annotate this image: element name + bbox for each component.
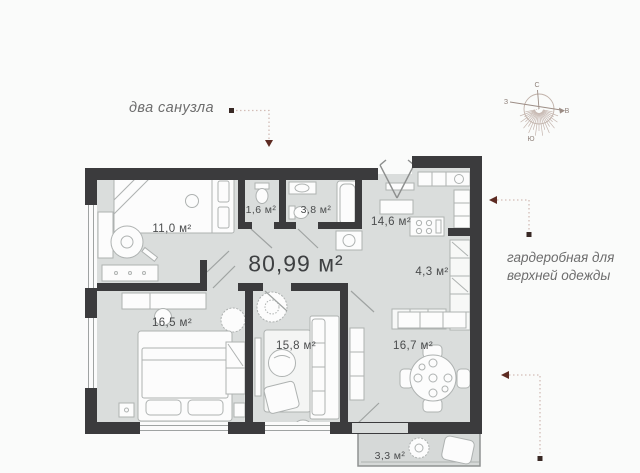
leader-bottom-right [501, 371, 543, 461]
sink-vanity [289, 182, 316, 194]
room-area-living: 16,7 м² [393, 340, 433, 352]
compass-west-label: З [504, 99, 508, 106]
total-area-label: 80,99 м² [248, 251, 343, 278]
desk [98, 212, 113, 258]
leader-wardrobe [489, 196, 532, 237]
leader-two-bathrooms [229, 108, 273, 147]
sideboard [398, 312, 466, 328]
window-bottom-2 [265, 422, 330, 434]
bed-double [138, 331, 232, 421]
room-area-balcony: 3,3 м² [375, 450, 406, 462]
room-area-wardrobe: 4,3 м² [415, 266, 448, 278]
compass-east-label: В [565, 108, 570, 115]
room-area-wc-small: 1,6 м² [246, 204, 277, 216]
entry-shelf [380, 200, 413, 214]
floorplan-drawing: С З В Ю [0, 0, 640, 473]
stove [410, 217, 444, 236]
sun-rays-icon [520, 110, 558, 136]
cabinet [350, 328, 364, 400]
plant [221, 308, 245, 332]
desk-2 [122, 293, 206, 309]
window-bedroom2 [85, 318, 97, 388]
balcony-door-gap [352, 423, 408, 433]
wardrobe-cabinet [226, 342, 245, 394]
bathtub [337, 181, 358, 228]
washing-machine [336, 231, 362, 250]
compass-sun-diagram: С З В Ю [504, 82, 570, 143]
pouf [186, 195, 199, 208]
room-area-bedroom-2: 16,5 м² [152, 317, 192, 329]
room-area-bathroom: 3,8 м² [301, 204, 332, 216]
toilet-small-wc [255, 183, 269, 204]
tv-console [255, 338, 261, 396]
room-area-room-3: 15,8 м² [276, 340, 316, 352]
compass-north-label: С [534, 82, 539, 89]
window-bedroom1 [85, 205, 97, 288]
compass-south-label: Ю [527, 136, 534, 143]
annotation-wardrobe-note: гардеробная для верхней одежды [507, 249, 617, 285]
pouf-chair [269, 350, 296, 377]
balcony-plant [409, 438, 429, 458]
nightstand-left [119, 403, 134, 417]
room-area-bedroom-1: 11,0 м² [152, 223, 191, 235]
annotation-two-bathrooms: два санузла [129, 100, 214, 116]
floorplan-image: С З В Ю два санузла гардеробная для верх… [0, 0, 640, 473]
nightstand-right [234, 403, 245, 417]
window-bottom-1 [140, 422, 228, 434]
room-area-kitchen: 14,6 м² [371, 216, 411, 228]
